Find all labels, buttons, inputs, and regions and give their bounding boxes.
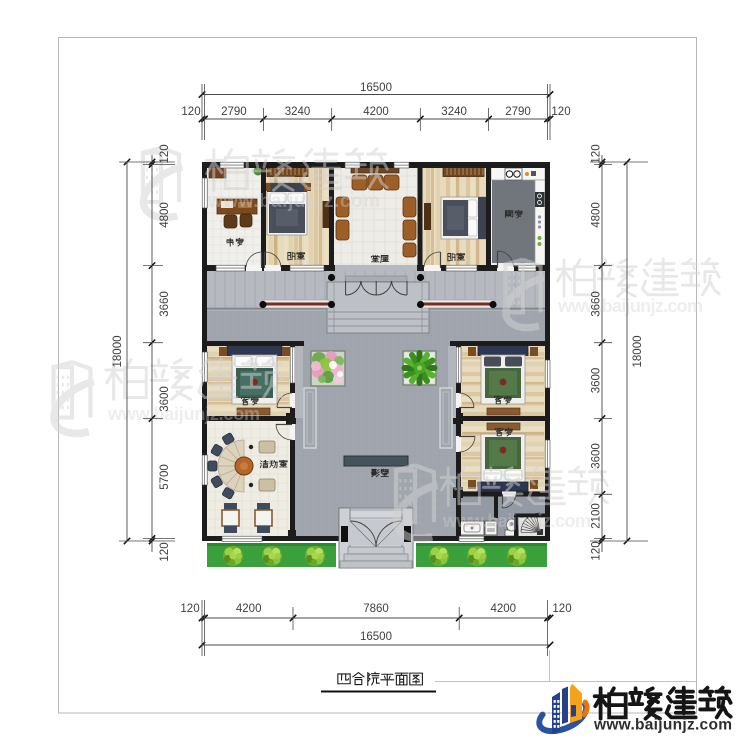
svg-text:16500: 16500 [360, 631, 392, 643]
svg-text:3660: 3660 [591, 291, 603, 317]
svg-text:120: 120 [551, 106, 570, 118]
svg-text:2790: 2790 [221, 106, 247, 118]
svg-text:www.baijunjz.com: www.baijunjz.com [207, 191, 380, 212]
svg-text:7860: 7860 [363, 603, 389, 615]
svg-text:www.baijunjz.com: www.baijunjz.com [557, 296, 703, 316]
svg-text:4200: 4200 [236, 603, 262, 615]
svg-text:4800: 4800 [159, 202, 171, 228]
svg-text:18000: 18000 [632, 336, 644, 368]
svg-text:120: 120 [591, 541, 603, 560]
svg-text:120: 120 [159, 542, 171, 561]
svg-text:4200: 4200 [363, 106, 389, 118]
svg-text:www.baijunjz.com: www.baijunjz.com [442, 511, 591, 531]
svg-text:3240: 3240 [441, 106, 467, 118]
svg-text:5700: 5700 [159, 464, 171, 490]
svg-text:2790: 2790 [505, 106, 531, 118]
svg-text:3660: 3660 [159, 291, 171, 317]
svg-text:3600: 3600 [591, 443, 603, 469]
svg-text:3240: 3240 [285, 106, 311, 118]
svg-text:120: 120 [180, 603, 199, 615]
svg-text:3600: 3600 [159, 386, 171, 412]
svg-text:18000: 18000 [112, 336, 124, 368]
svg-text:www.baijunjz.com: www.baijunjz.com [107, 404, 260, 424]
svg-text:120: 120 [552, 603, 571, 615]
svg-text:120: 120 [159, 144, 171, 163]
svg-text:4200: 4200 [491, 603, 517, 615]
svg-text:16500: 16500 [360, 82, 392, 94]
svg-text:120: 120 [591, 144, 603, 163]
svg-text:2100: 2100 [591, 503, 603, 529]
svg-text:www.baijunjz.com: www.baijunjz.com [593, 717, 732, 734]
svg-text:120: 120 [181, 106, 200, 118]
svg-text:3600: 3600 [591, 368, 603, 394]
svg-text:4800: 4800 [591, 202, 603, 228]
